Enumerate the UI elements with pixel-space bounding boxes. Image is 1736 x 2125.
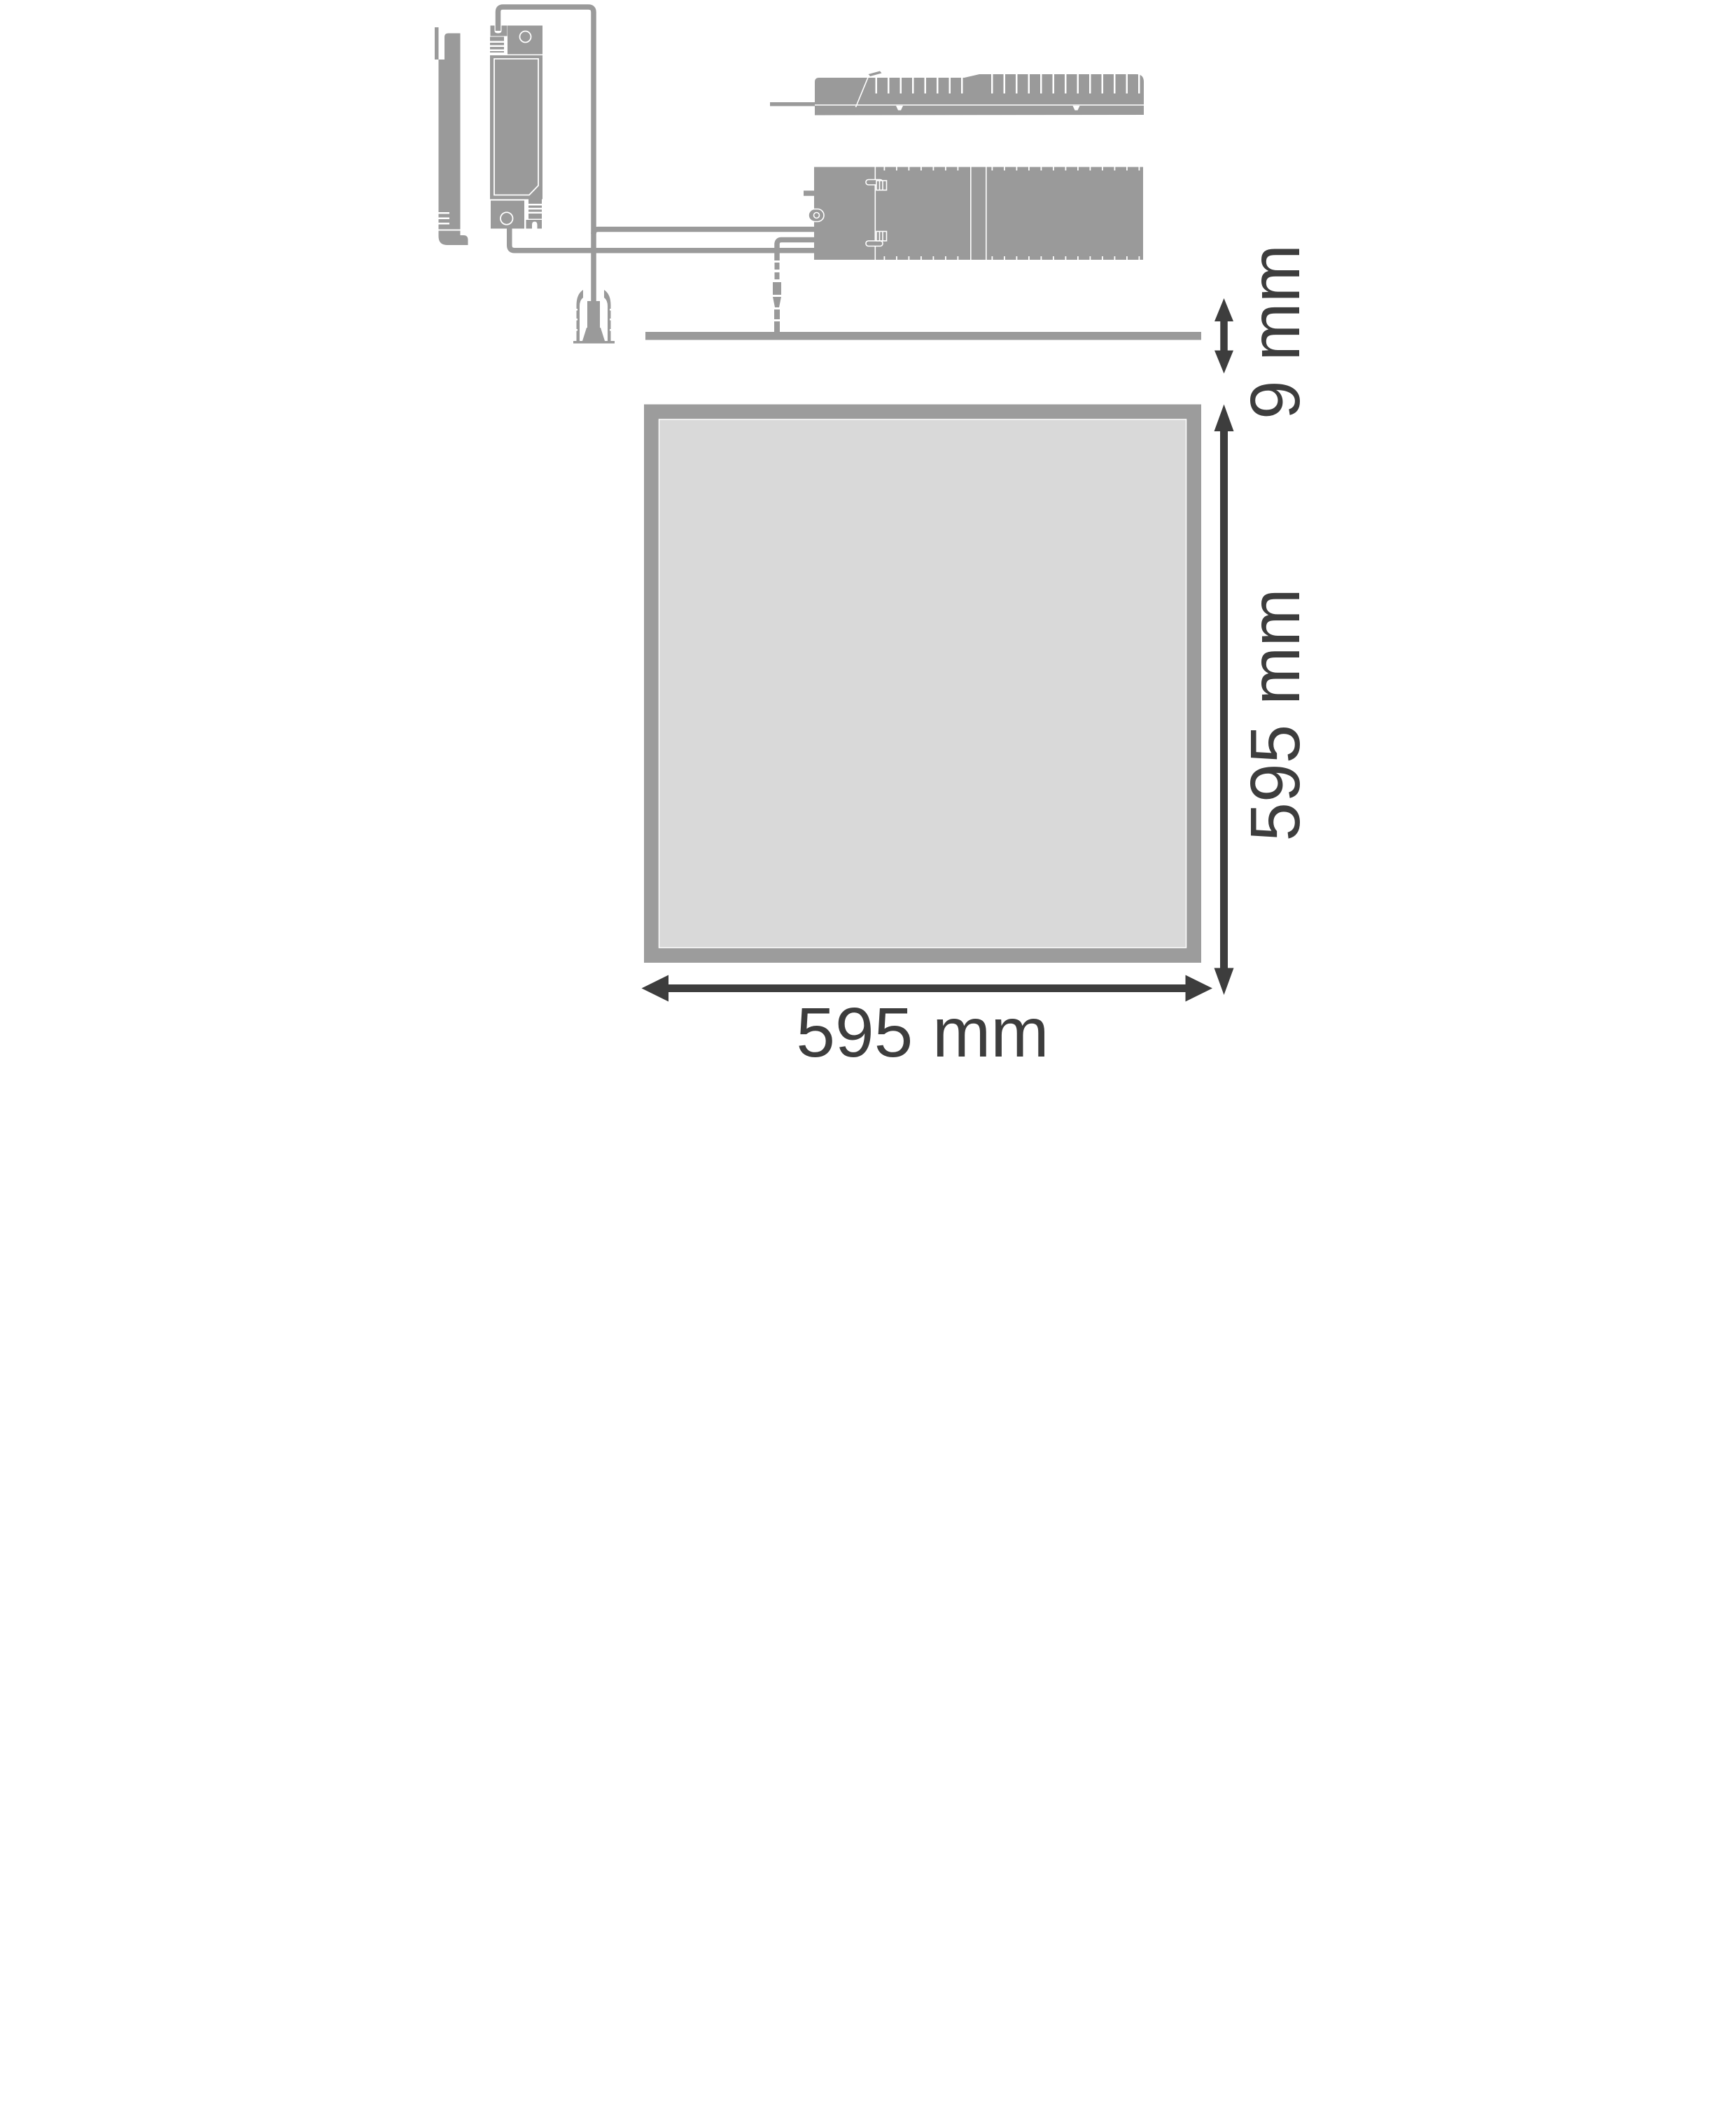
gear-tray-top-view xyxy=(808,167,1143,260)
panel-diffuser xyxy=(659,419,1186,948)
profile-flange xyxy=(435,27,439,60)
driver-profile-view xyxy=(435,27,468,245)
dimension-label-height: 595 mm xyxy=(1236,588,1302,841)
dimension-label-width: 595 mm xyxy=(796,994,1049,1063)
cable-strain-relief xyxy=(773,263,781,332)
driver-bottom-vent-block xyxy=(528,196,542,219)
panel-front-view xyxy=(644,405,1201,963)
anchor-head xyxy=(582,328,605,341)
anchor-plug-left xyxy=(577,290,584,341)
arrow-thickness-9mm xyxy=(1214,298,1233,374)
tray-body xyxy=(814,167,1143,260)
driver-front-view xyxy=(490,26,542,229)
sideview-top-tab xyxy=(869,71,882,77)
panel-side-view-line xyxy=(645,332,1201,340)
driver-main-body xyxy=(490,55,542,200)
profile-body xyxy=(439,34,461,230)
sideview-body xyxy=(815,74,1144,116)
driver-top-block xyxy=(507,26,542,55)
arrow-height-595mm xyxy=(1214,405,1234,996)
anchor-baseline xyxy=(573,341,615,344)
wire-branch-to-tray xyxy=(594,230,814,235)
profile-foot xyxy=(439,231,468,246)
dimension-label-thickness: 9 mm xyxy=(1236,244,1302,419)
dimension-drawing: 9 mm 595 mm 595 mm xyxy=(434,0,1302,1063)
tray-keyhole-tab xyxy=(808,209,824,222)
anchor-plug-right xyxy=(604,290,611,341)
wiring xyxy=(498,7,815,305)
driver-side-view xyxy=(815,71,1144,116)
